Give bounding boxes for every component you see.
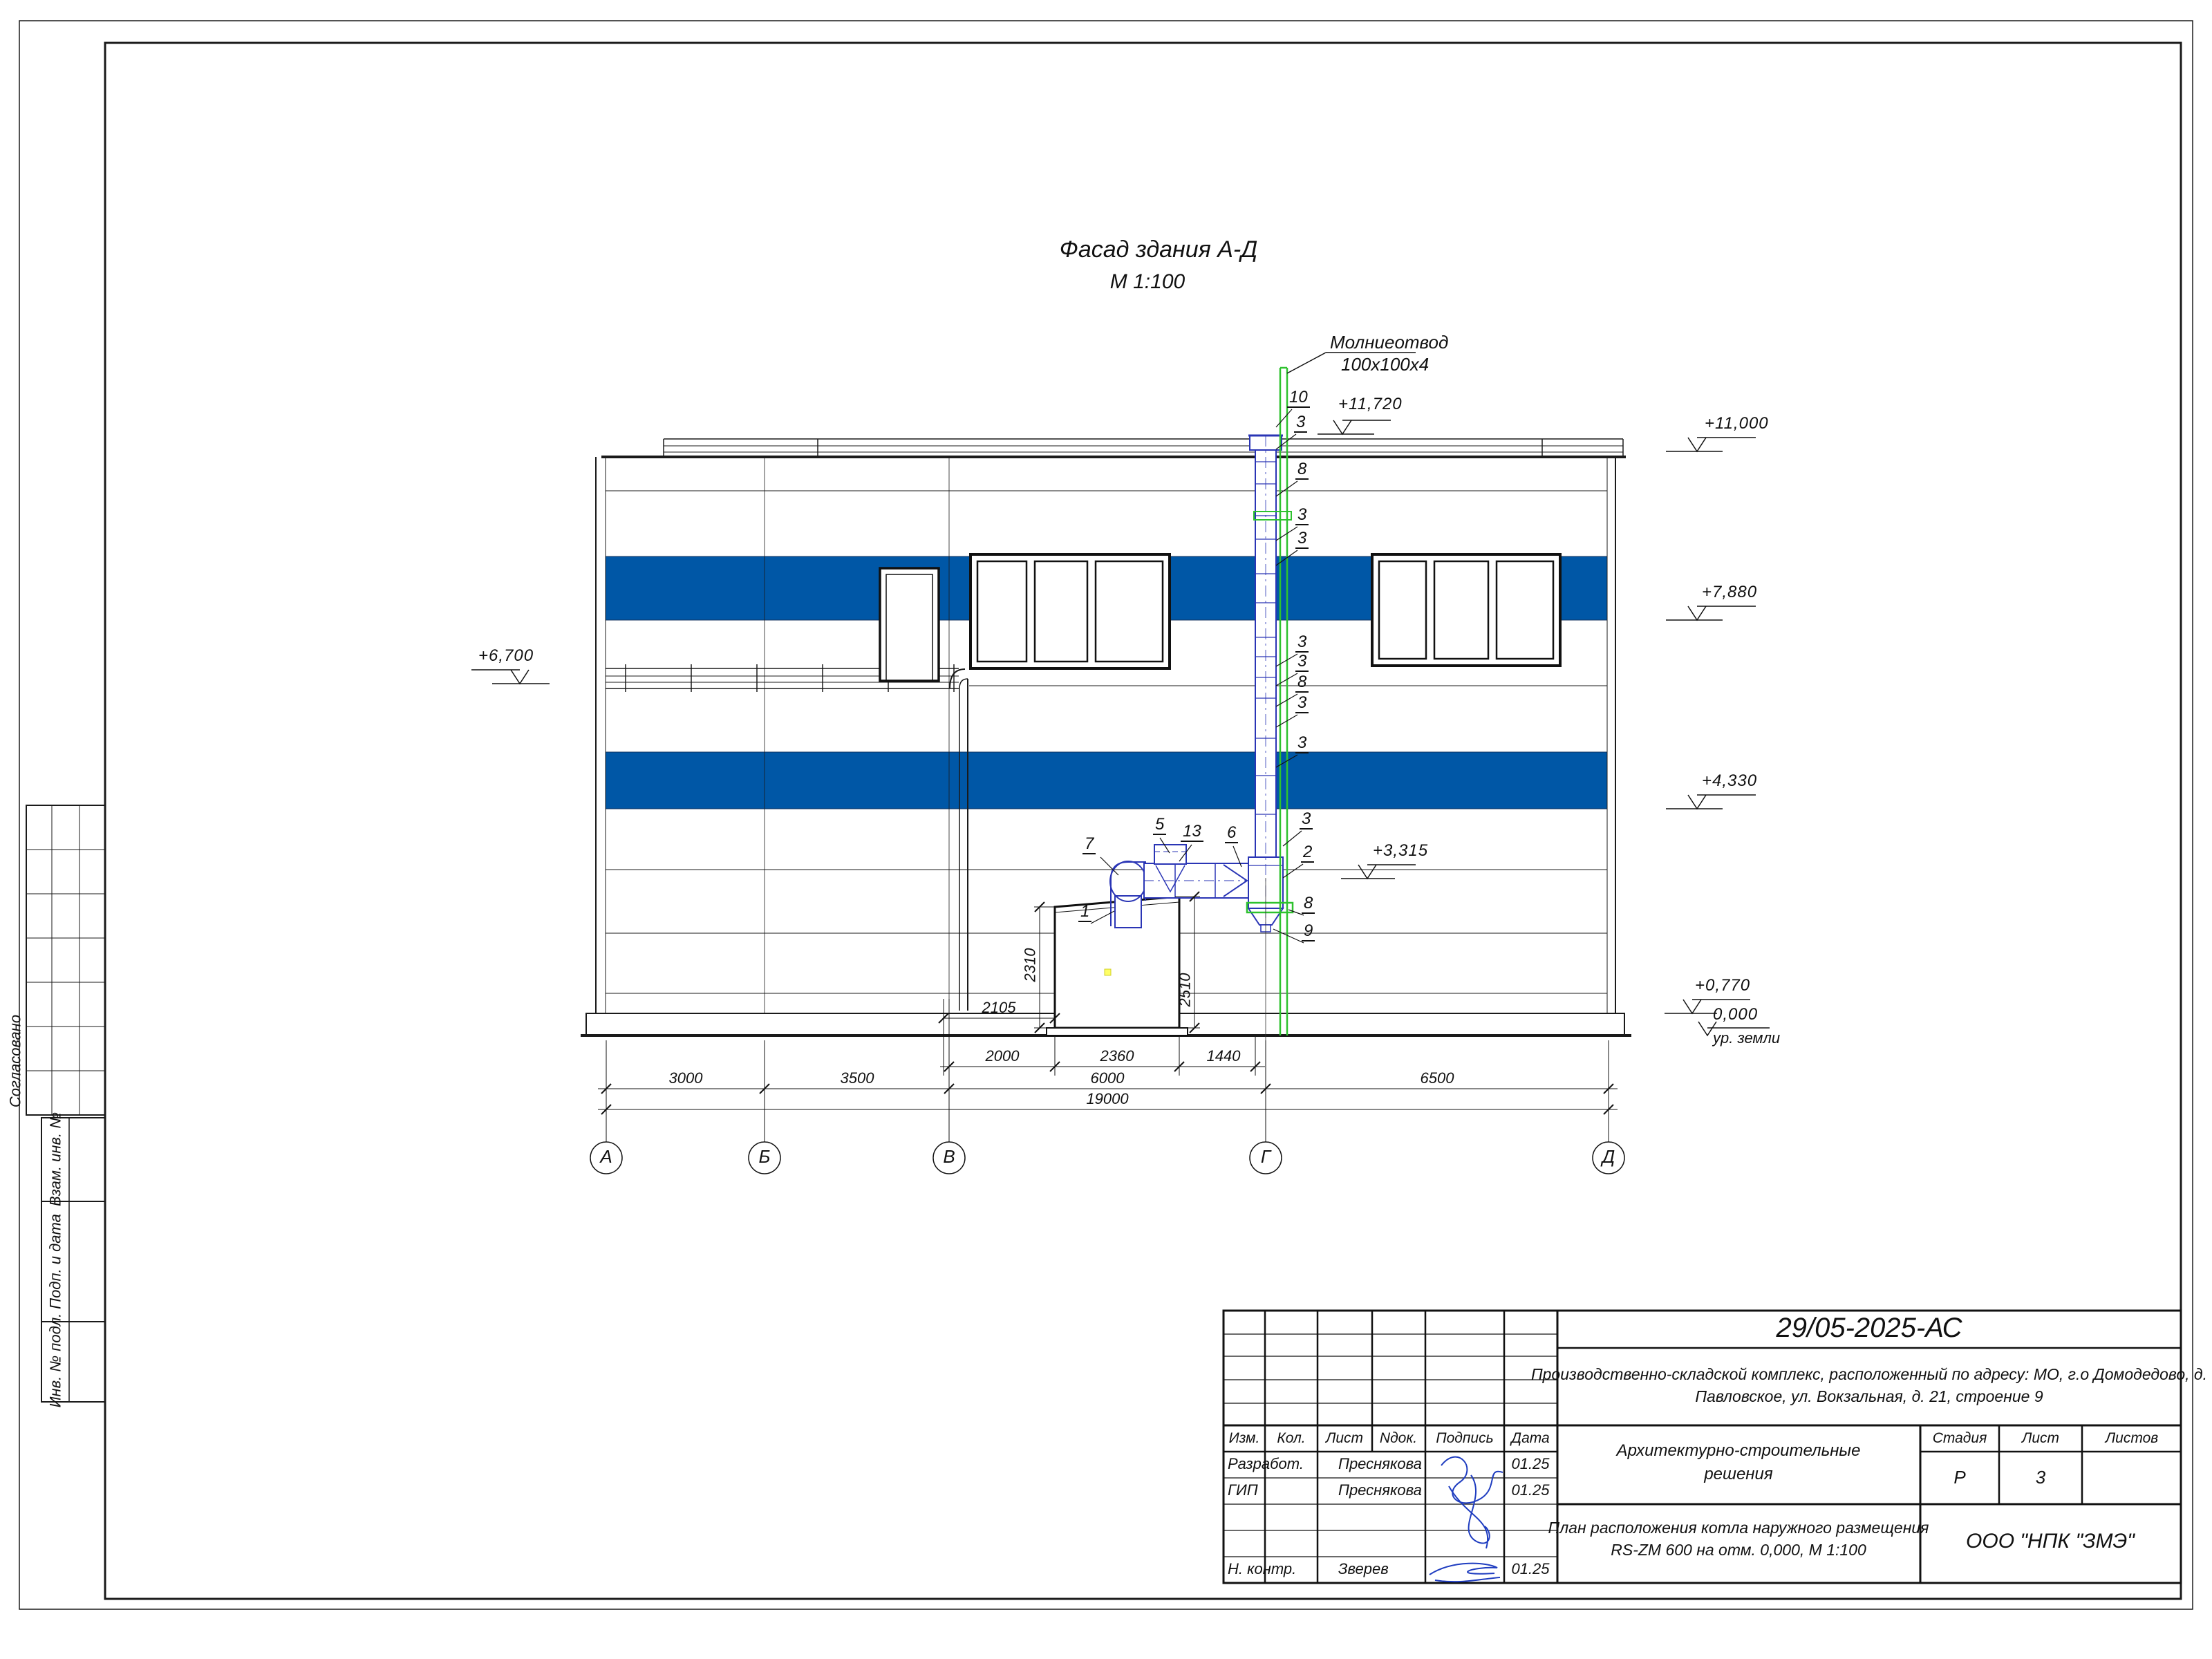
elevation-roof: +11,000 (1705, 415, 1769, 432)
tb-row-date: 01.25 (1511, 1456, 1549, 1472)
elevation-top-chimney: +11,720 (1338, 395, 1403, 413)
axis-bubble-b: Б (759, 1147, 771, 1166)
tb-stage-header: Стадия (1933, 1431, 1987, 1446)
dim-6500: 6500 (1421, 1070, 1454, 1086)
tb-row-name: Преснякова (1338, 1456, 1422, 1472)
tb-list-header: Лист (2022, 1431, 2059, 1446)
margin-vzam: Взам. инв. № (47, 1112, 63, 1206)
lightning-label: Молниеотвод (1330, 333, 1448, 352)
dim-19000: 19000 (1086, 1091, 1128, 1107)
callout-3g: 3 (1295, 734, 1309, 753)
lightning-size: 100х100х4 (1341, 355, 1429, 374)
tb-doc-number: 29/05-2025-АС (1776, 1313, 1962, 1342)
callout-3c: 3 (1295, 529, 1309, 549)
callout-3d: 3 (1295, 633, 1309, 653)
callout-10: 10 (1287, 388, 1310, 408)
chimney (1248, 435, 1283, 932)
tb-row-name: Зверев (1338, 1561, 1389, 1577)
tb-stage-value: Р (1953, 1468, 1965, 1487)
axis-bubble-g: Г (1261, 1147, 1271, 1166)
callout-5: 5 (1153, 816, 1166, 835)
tb-project-line2: Павловское, ул. Вокзальная, д. 21, строе… (1695, 1388, 2043, 1405)
callout-8c: 8 (1302, 894, 1315, 914)
signatures (1430, 1457, 1503, 1582)
tb-row-date: 01.25 (1511, 1482, 1549, 1498)
axis-bubble-v: В (943, 1147, 955, 1166)
callout-7: 7 (1082, 835, 1096, 854)
tb-row-role: ГИП (1228, 1482, 1258, 1498)
tb-header-podpis: Подпись (1436, 1431, 1493, 1446)
callout-3e: 3 (1295, 653, 1309, 672)
axis-bubbles (590, 1109, 1624, 1174)
dim-2510: 2510 (1177, 973, 1192, 1007)
elevation-zero: 0,000 (1713, 1006, 1758, 1023)
tb-row-name: Преснякова (1338, 1482, 1422, 1498)
elevation-plinth: +0,770 (1695, 977, 1750, 994)
axis-bubble-d: Д (1602, 1147, 1615, 1166)
tb-section-title2: решения (1704, 1465, 1772, 1483)
callout-6: 6 (1225, 824, 1238, 843)
tb-project-line1: Производственно-складской комплекс, расп… (1531, 1366, 2207, 1382)
callout-8a: 8 (1295, 460, 1309, 480)
tb-list-value: 3 (2036, 1468, 2045, 1487)
dim-2000: 2000 (986, 1048, 1020, 1064)
door (880, 568, 939, 681)
tb-row-role: Н. контр. (1228, 1561, 1296, 1577)
tb-header-ndok: Nдок. (1380, 1431, 1417, 1446)
callout-3a: 3 (1294, 413, 1307, 433)
elevation-annex-roof: +6,700 (478, 647, 534, 664)
tb-row-date: 01.25 (1511, 1561, 1549, 1577)
annex-roof (606, 664, 968, 1011)
tb-sheet-title1: План расположения котла наружного размещ… (1548, 1519, 1929, 1536)
tb-section-title1: Архитектурно-строительные (1617, 1442, 1861, 1459)
tb-listov-header: Листов (2106, 1431, 2158, 1446)
elevation-duct-axis: +3,315 (1373, 842, 1428, 859)
tb-header-kol: Кол. (1277, 1431, 1305, 1446)
dim-2105: 2105 (982, 1000, 1016, 1015)
callout-2: 2 (1301, 843, 1314, 863)
callout-8b: 8 (1295, 673, 1309, 693)
margin-podp: Подп. и дата (47, 1214, 63, 1309)
callout-3h: 3 (1300, 810, 1313, 829)
tb-sheet-title2: RS-ZM 600 на отм. 0,000, М 1:100 (1611, 1541, 1866, 1558)
drawing-title: Фасад здания А-Д (1060, 238, 1257, 263)
dim-3500: 3500 (841, 1070, 874, 1086)
dim-6000: 6000 (1091, 1070, 1125, 1086)
ground-level-label: ур. земли (1713, 1030, 1780, 1046)
dim-2360: 2360 (1100, 1048, 1134, 1064)
dim-2310: 2310 (1022, 948, 1038, 982)
callout-1: 1 (1078, 903, 1091, 922)
dim-1440: 1440 (1207, 1048, 1241, 1064)
drawing-sheet: Фасад здания А-Д М 1:100 Молниеотвод 100… (0, 0, 2212, 1659)
callout-3f: 3 (1295, 694, 1309, 713)
tb-company: ООО "НПК "ЗМЭ" (1966, 1530, 2135, 1553)
callout-13: 13 (1181, 823, 1203, 842)
margin-inv: Инв. № подл. (47, 1313, 63, 1408)
tb-row-role: Разработ. (1228, 1456, 1304, 1472)
elevation-stripe1: +7,880 (1702, 583, 1757, 601)
tb-header-list: Лист (1326, 1431, 1363, 1446)
margin-approved: Согласовано (7, 1015, 23, 1107)
tb-header-data: Дата (1511, 1431, 1549, 1446)
selection-artifact (1105, 969, 1111, 975)
tb-header-izm: Изм. (1229, 1431, 1260, 1446)
callout-3b: 3 (1295, 506, 1309, 525)
callout-9: 9 (1302, 922, 1315, 941)
axis-bubble-a: А (600, 1147, 612, 1166)
elevation-stripe2: +4,330 (1702, 772, 1757, 789)
margin-tables (26, 805, 105, 1402)
dim-3000: 3000 (669, 1070, 703, 1086)
drawing-scale: М 1:100 (1110, 271, 1185, 293)
